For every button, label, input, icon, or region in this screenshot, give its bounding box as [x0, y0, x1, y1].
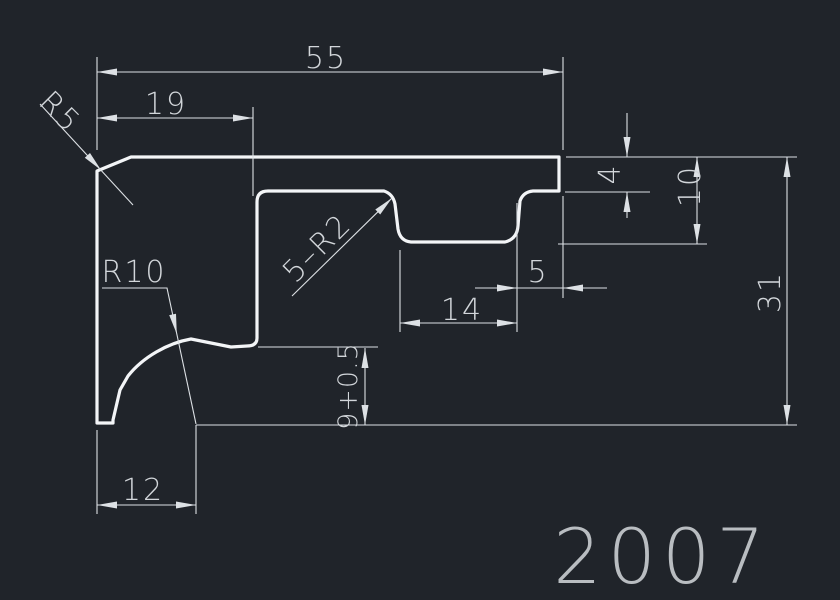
cad-drawing: 55 19 R5 R10 5–R2 4 10 31 5 14 9+0.5 12 …	[0, 0, 840, 600]
cad-drawing-canvas: 55 19 R5 R10 5–R2 4 10 31 5 14 9+0.5 12 …	[0, 0, 840, 600]
dim-label-31: 31	[753, 271, 788, 313]
dim-label-14: 14	[441, 293, 483, 328]
dim-label-5: 5	[527, 255, 548, 290]
dim-label-10: 10	[673, 165, 708, 207]
dim-label-12: 12	[122, 473, 164, 508]
dim-label-19: 19	[145, 87, 187, 122]
drawing-number: 2007	[553, 512, 770, 600]
drawing-background	[0, 0, 840, 600]
dim-label-4: 4	[593, 163, 628, 184]
dim-label-9-tolerance: 9+0.5	[333, 342, 364, 430]
dim-label-55: 55	[305, 41, 347, 76]
dim-label-r10: R10	[101, 255, 166, 290]
